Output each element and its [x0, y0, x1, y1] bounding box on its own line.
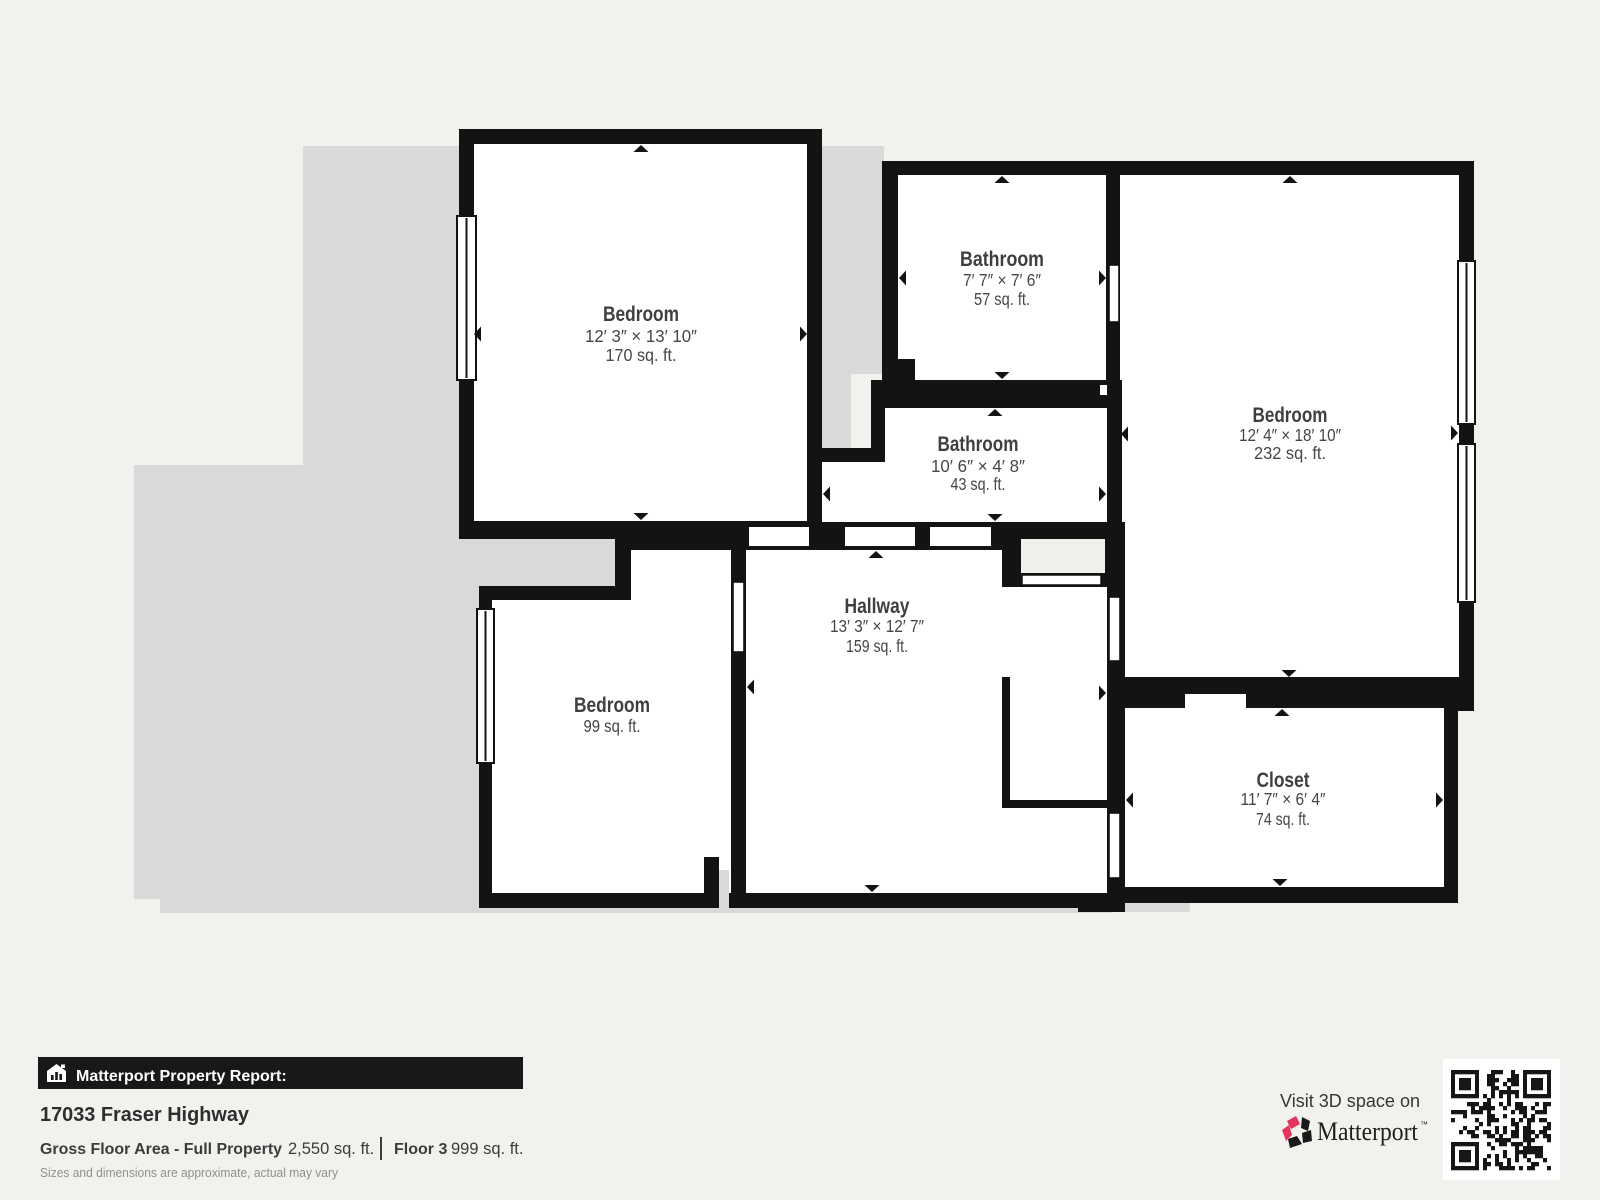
svg-text:Bedroom: Bedroom: [603, 302, 679, 326]
svg-text:Matterport Property Report:: Matterport Property Report:: [76, 1068, 287, 1085]
svg-text:99 sq. ft.: 99 sq. ft.: [584, 716, 641, 736]
svg-text:170 sq. ft.: 170 sq. ft.: [606, 345, 677, 365]
svg-text:Gross Floor Area - Full Proper: Gross Floor Area - Full Property: [40, 1141, 282, 1158]
svg-text:2,550 sq. ft.: 2,550 sq. ft.: [288, 1140, 374, 1158]
svg-text:™: ™: [1420, 1120, 1428, 1129]
svg-text:Floor 3: Floor 3: [394, 1141, 447, 1158]
svg-text:999 sq. ft.: 999 sq. ft.: [451, 1140, 523, 1158]
svg-text:Bedroom: Bedroom: [1253, 403, 1328, 427]
svg-text:43 sq. ft.: 43 sq. ft.: [951, 474, 1006, 494]
svg-text:7′ 7″ × 7′ 6″: 7′ 7″ × 7′ 6″: [963, 270, 1041, 290]
svg-text:232 sq. ft.: 232 sq. ft.: [1254, 443, 1326, 463]
svg-text:159 sq. ft.: 159 sq. ft.: [846, 636, 908, 656]
svg-text:Hallway: Hallway: [845, 594, 910, 618]
svg-text:57 sq. ft.: 57 sq. ft.: [974, 289, 1030, 309]
svg-text:12′ 4″ × 18′ 10″: 12′ 4″ × 18′ 10″: [1239, 425, 1341, 445]
svg-text:Bathroom: Bathroom: [938, 432, 1019, 456]
svg-text:Sizes and dimensions are appro: Sizes and dimensions are approximate, ac…: [40, 1165, 338, 1180]
svg-text:11′ 7″ × 6′ 4″: 11′ 7″ × 6′ 4″: [1241, 789, 1326, 809]
svg-text:10′ 6″ × 4′ 8″: 10′ 6″ × 4′ 8″: [931, 456, 1025, 476]
svg-text:Bathroom: Bathroom: [960, 247, 1044, 271]
svg-text:13′ 3″ × 12′ 7″: 13′ 3″ × 12′ 7″: [830, 616, 924, 636]
svg-text:17033 Fraser Highway: 17033 Fraser Highway: [40, 1104, 250, 1126]
svg-text:Visit 3D space on: Visit 3D space on: [1280, 1091, 1420, 1111]
svg-text:Matterport: Matterport: [1317, 1117, 1419, 1146]
svg-text:74 sq. ft.: 74 sq. ft.: [1256, 809, 1310, 829]
svg-text:12′ 3″ × 13′ 10″: 12′ 3″ × 13′ 10″: [585, 326, 697, 346]
svg-text:Bedroom: Bedroom: [574, 693, 650, 717]
